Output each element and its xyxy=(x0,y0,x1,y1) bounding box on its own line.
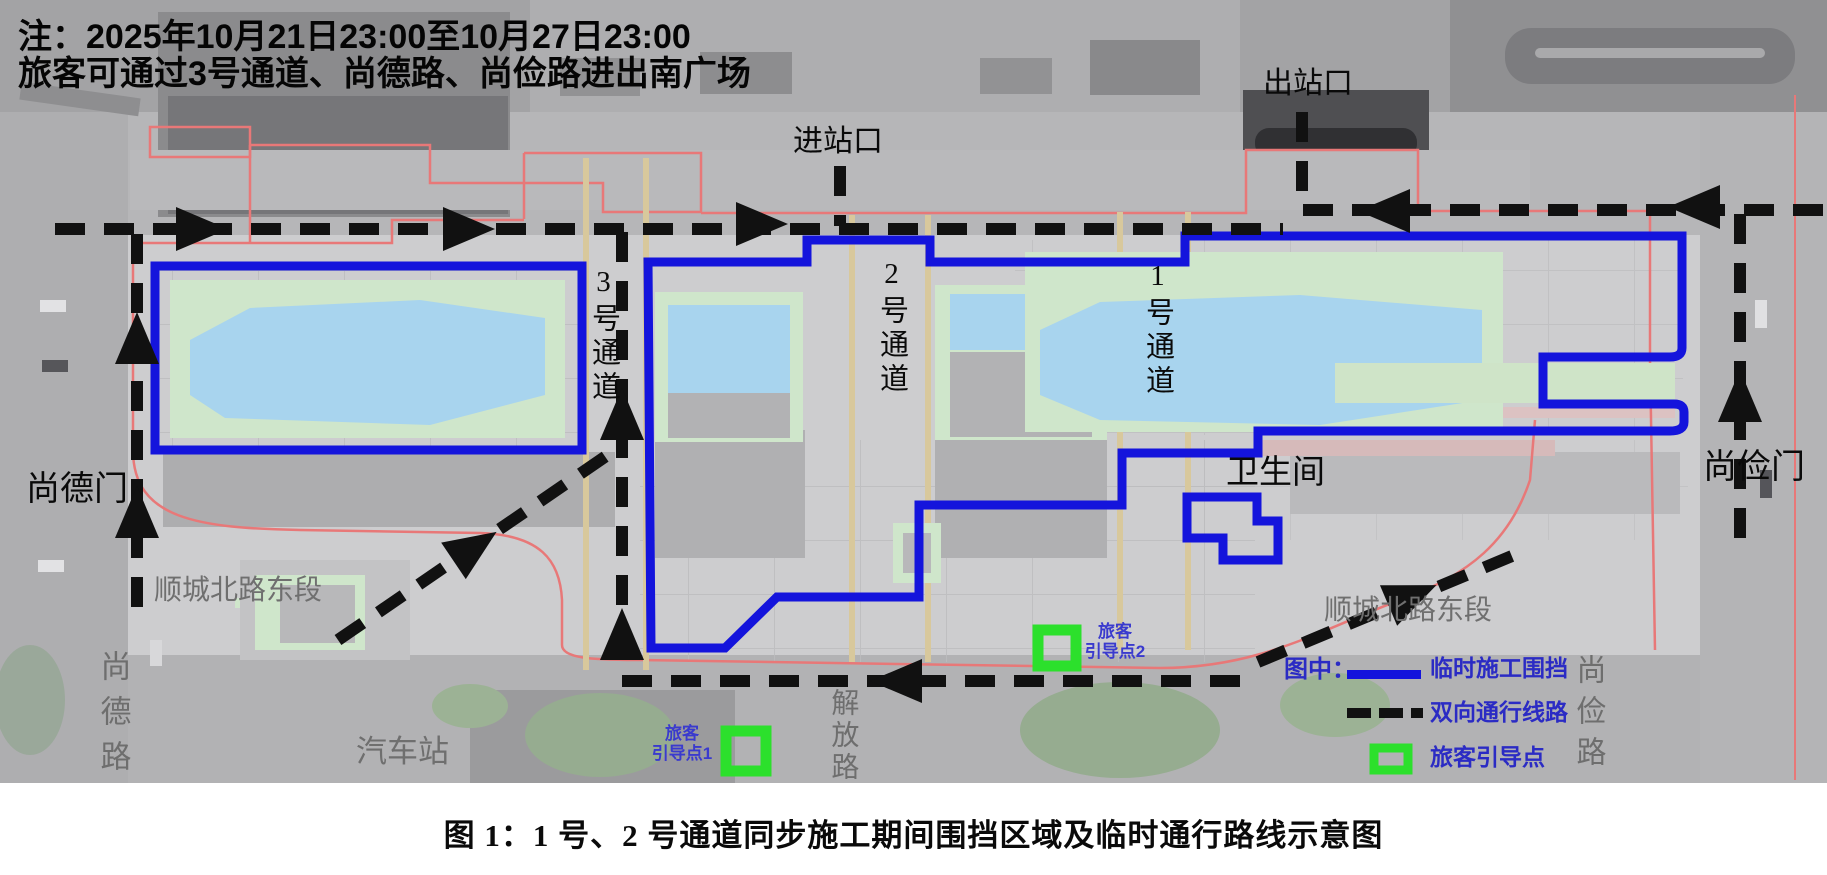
exit-gate-label: 出站口 xyxy=(1263,68,1353,100)
legend-item-guide: 旅客引导点 xyxy=(1430,746,1545,770)
channel-1-label: 1号通道 xyxy=(1142,260,1172,399)
note-line-1: 注：2025年10月21日23:00至10月27日23:00 xyxy=(18,20,691,56)
legend-fence-swatch xyxy=(1347,670,1421,679)
aerial-map: 注：2025年10月21日23:00至10月27日23:00 旅客可通过3号通道… xyxy=(0,0,1827,783)
channel-2-label: 2号通道 xyxy=(876,258,906,397)
shuncheng-road-left-label: 顺城北路东段 xyxy=(154,576,322,605)
guide-point-2-label: 旅客 引导点2 xyxy=(1082,622,1148,661)
guide-point-1-line2: 引导点1 xyxy=(644,744,720,764)
shangde-gate-label: 尚德门 xyxy=(26,472,128,508)
legend-item-fence: 临时施工围挡 xyxy=(1430,657,1568,681)
guide-point-1-label: 旅客 引导点1 xyxy=(644,724,720,763)
figure: 注：2025年10月21日23:00至10月27日23:00 旅客可通过3号通道… xyxy=(0,0,1827,875)
shangjian-gate-label: 尚俭门 xyxy=(1703,450,1805,486)
legend-route-swatch xyxy=(1347,708,1423,718)
shangde-road-label: 尚德路 xyxy=(96,650,129,785)
guide-point-2-line1: 旅客 xyxy=(1082,622,1148,642)
entrance-gate-label: 进站口 xyxy=(793,126,883,158)
bus-station-label: 汽车站 xyxy=(356,736,449,769)
legend-item-route: 双向通行线路 xyxy=(1430,701,1568,725)
shangjian-road-label: 尚俭路 xyxy=(1572,654,1604,777)
channel-3-label: 3号通道 xyxy=(588,266,618,405)
figure-caption: 图 1：1 号、2 号通道同步施工期间围挡区域及临时通行路线示意图 xyxy=(0,810,1827,855)
shuncheng-road-right-label: 顺城北路东段 xyxy=(1324,596,1492,625)
jiefang-road-label: 解放路 xyxy=(828,688,857,784)
legend-title: 图中： xyxy=(1284,658,1356,683)
guide-point-2-line2: 引导点2 xyxy=(1082,642,1148,662)
note-line-2: 旅客可通过3号通道、尚德路、尚俭路进出南广场 xyxy=(18,57,751,93)
guide-point-1-line1: 旅客 xyxy=(644,724,720,744)
restroom-label: 卫生间 xyxy=(1226,456,1325,491)
